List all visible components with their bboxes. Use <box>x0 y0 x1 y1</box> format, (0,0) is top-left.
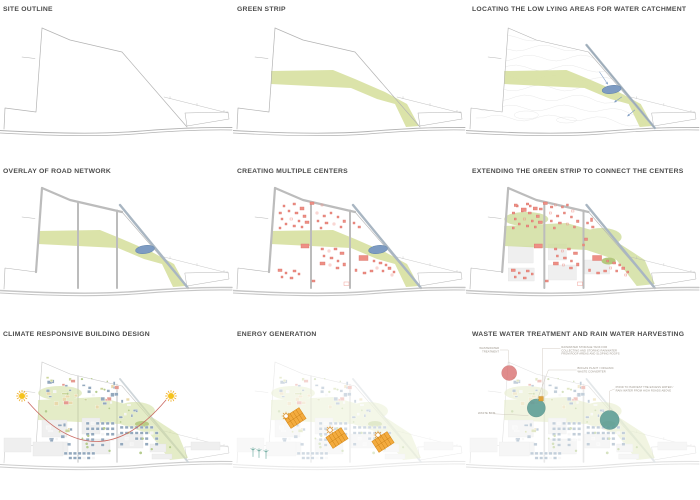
diagram-sheet: SITE OUTLINE GREEN STRIP LOCATING THE LO… <box>0 0 700 500</box>
panel-road-network: OVERLAY OF ROAD NETWORK <box>0 160 233 320</box>
panel-multiple-centers: CREATING MULTIPLE CENTERS <box>233 160 466 320</box>
annotation-wastewater-treatment: WASTEWATERTREATMENT <box>479 346 499 353</box>
svg-text:WASTE CONVERTER: WASTE CONVERTER <box>577 369 605 373</box>
panel-site-outline: SITE OUTLINE <box>0 0 233 160</box>
panel-climate-design: CLIMATE RESPONSIVE BUILDING DESIGN <box>0 320 233 500</box>
diagram-multiple-centers <box>233 160 466 320</box>
panel-green-strip: GREEN STRIP <box>233 0 466 160</box>
diagram-green-strip <box>233 0 466 160</box>
svg-text:WASTE BINS: WASTE BINS <box>478 411 495 415</box>
svg-text:RAIN WATER FROM HIGH ROADS ABO: RAIN WATER FROM HIGH ROADS ABOVE <box>616 388 672 392</box>
svg-text:TREATMENT: TREATMENT <box>482 349 499 353</box>
diagram-energy-generation <box>233 320 466 500</box>
annotation-waste-bins: WASTE BINS <box>478 411 495 415</box>
diagram-climate-design <box>0 320 233 500</box>
panel-water-treatment: WASTE WATER TREATMENT AND RAIN WATER HAR… <box>466 320 700 500</box>
diagram-water-catchment <box>466 0 700 160</box>
panel-title-multiple-centers: CREATING MULTIPLE CENTERS <box>237 168 348 175</box>
svg-text:FROM ROOF AREAS AND SLOPING RO: FROM ROOF AREAS AND SLOPING ROOFS <box>561 352 619 356</box>
annotation-biogas-plant: BIOGAS PLANT / ORGANICWASTE CONVERTER <box>577 366 613 373</box>
panel-title-water-catchment: LOCATING THE LOW LYING AREAS FOR WATER C… <box>472 6 686 13</box>
panel-title-water-treatment: WASTE WATER TREATMENT AND RAIN WATER HAR… <box>472 331 684 338</box>
panel-extend-green: EXTENDING THE GREEN STRIP TO CONNECT THE… <box>466 160 700 320</box>
panel-water-catchment: LOCATING THE LOW LYING AREAS FOR WATER C… <box>466 0 700 160</box>
diagram-road-network <box>0 160 233 320</box>
panel-energy-generation: ENERGY GENERATION <box>233 320 466 500</box>
panel-title-green-strip: GREEN STRIP <box>237 6 286 13</box>
diagram-extend-green <box>466 160 700 320</box>
panel-title-road-network: OVERLAY OF ROAD NETWORK <box>3 168 111 175</box>
diagram-site-outline <box>0 0 233 160</box>
annotation-harvest-pond: POND TO HARVEST THE EXCESS WATER /RAIN W… <box>616 385 674 392</box>
panel-title-extend-green: EXTENDING THE GREEN STRIP TO CONNECT THE… <box>472 168 684 175</box>
panel-title-climate-design: CLIMATE RESPONSIVE BUILDING DESIGN <box>3 331 150 338</box>
panel-title-energy-generation: ENERGY GENERATION <box>237 331 317 338</box>
annotation-rainwater-tank: RAINWATER STORAGE TANK FORCOLLECTING AND… <box>561 345 619 356</box>
panel-title-site-outline: SITE OUTLINE <box>3 6 53 13</box>
diagram-water-treatment: WASTEWATERTREATMENTRAINWATER STORAGE TAN… <box>466 320 700 500</box>
